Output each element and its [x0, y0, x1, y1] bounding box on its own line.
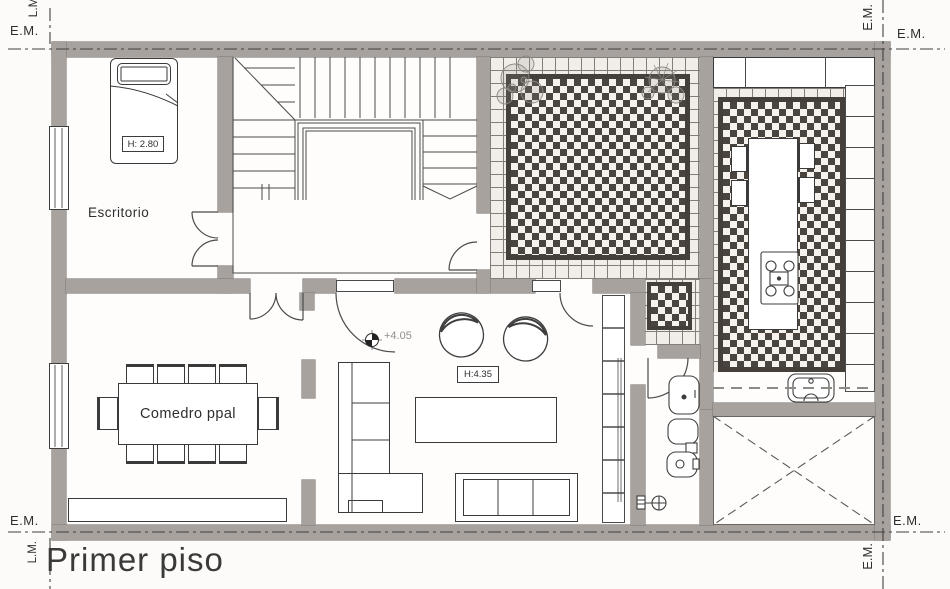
- landing-checker-floor: [647, 282, 692, 330]
- coffee-table: [415, 397, 557, 443]
- wall-top: [52, 42, 890, 57]
- escritorio-height-text: H: 2.80: [128, 139, 159, 150]
- door-leaf: [532, 280, 561, 292]
- dining-chair: [188, 364, 216, 384]
- wall-interior-h-west: [66, 279, 250, 293]
- room-label-escritorio: Escritorio: [88, 205, 149, 220]
- sofa-three-seat-cushions: [463, 479, 570, 516]
- kitchen-top-cabinets: [713, 57, 875, 88]
- wall-stair-patio-upper: [477, 57, 490, 213]
- marker-em-top-left: E.M.: [10, 23, 39, 38]
- wall-left: [52, 42, 66, 540]
- kitchen-stool: [797, 143, 815, 169]
- wall-stub-tab: [300, 293, 314, 310]
- marker-em-bottom-right: E.M.: [893, 513, 922, 528]
- kitchen-island: [748, 138, 798, 330]
- comedor-room-label: Comedro ppal: [140, 406, 236, 422]
- marker-em-bottom-left: E.M.: [10, 513, 39, 528]
- wall-bath-xroom: [700, 410, 713, 525]
- wall-bottom: [52, 525, 890, 540]
- marker-em-top-right-vertical: E.M.: [860, 4, 875, 31]
- marker-lm-bottom-left: L.M.: [27, 541, 39, 563]
- page-title: Primer piso: [46, 541, 224, 579]
- wall-interior-h-stub: [303, 279, 336, 293]
- wall-xroom-top: [713, 403, 875, 416]
- living-shelf-ladder: [602, 295, 625, 523]
- wall-dining-living-upper: [302, 360, 315, 398]
- marker-em-top-right: E.M.: [897, 26, 926, 41]
- wall-interior-h-east: [593, 279, 645, 293]
- void-room: [713, 416, 875, 525]
- wall-patio-kitchen-upper: [700, 57, 713, 279]
- dining-sideboard: [68, 498, 287, 522]
- patio-checker-floor: [506, 74, 690, 260]
- kitchen-cabinet-divider: [745, 57, 746, 88]
- dining-chair: [219, 364, 247, 384]
- dining-table: Comedro ppal: [118, 383, 258, 445]
- marker-lm-top-left: L.M.: [26, 0, 40, 17]
- kitchen-stool: [797, 177, 815, 203]
- wall-bath-top: [658, 345, 700, 358]
- marker-em-bottom-right-vertical: E.M.: [860, 543, 875, 570]
- wall-living-bath-upper: [631, 293, 645, 345]
- window-escritorio: [49, 126, 69, 210]
- kitchen-counter-right: [845, 85, 875, 392]
- sofa-l-cushion: [348, 500, 383, 513]
- kitchen-stool: [731, 180, 749, 206]
- wall-interior-h-mid: [395, 279, 535, 293]
- dining-chair: [188, 444, 216, 464]
- living-height-text: H:4.35: [464, 369, 492, 380]
- kitchen-stool: [731, 146, 749, 172]
- dining-chair: [126, 364, 154, 384]
- dining-chair: [126, 444, 154, 464]
- dining-chair: [157, 364, 185, 384]
- floor-plan-canvas: H: 2.80 Comedro ppal H:4.35 +4.05: [0, 0, 950, 589]
- dining-chair: [157, 444, 185, 464]
- wall-patio-kitchen-lower: [700, 279, 713, 410]
- kitchen-cabinet-divider: [825, 57, 826, 88]
- floor-level-label: +4.05: [384, 330, 412, 342]
- door-leaf: [336, 280, 394, 292]
- dining-chair: [97, 397, 118, 430]
- dining-chair: [219, 444, 247, 464]
- wall-stair-patio-lower: [477, 270, 490, 293]
- dining-chair: [258, 397, 279, 430]
- living-height-note: H:4.35: [457, 366, 499, 383]
- escritorio-height-note: H: 2.80: [122, 136, 164, 152]
- kitchen-sink-counter: [713, 372, 845, 403]
- wall-escritorio-east-upper: [218, 57, 233, 212]
- bed-pillow: [117, 63, 171, 85]
- wall-living-bath-lower: [631, 385, 645, 525]
- wall-dining-living-lower: [302, 480, 315, 525]
- window-comedor: [49, 363, 69, 449]
- wall-right: [875, 42, 890, 540]
